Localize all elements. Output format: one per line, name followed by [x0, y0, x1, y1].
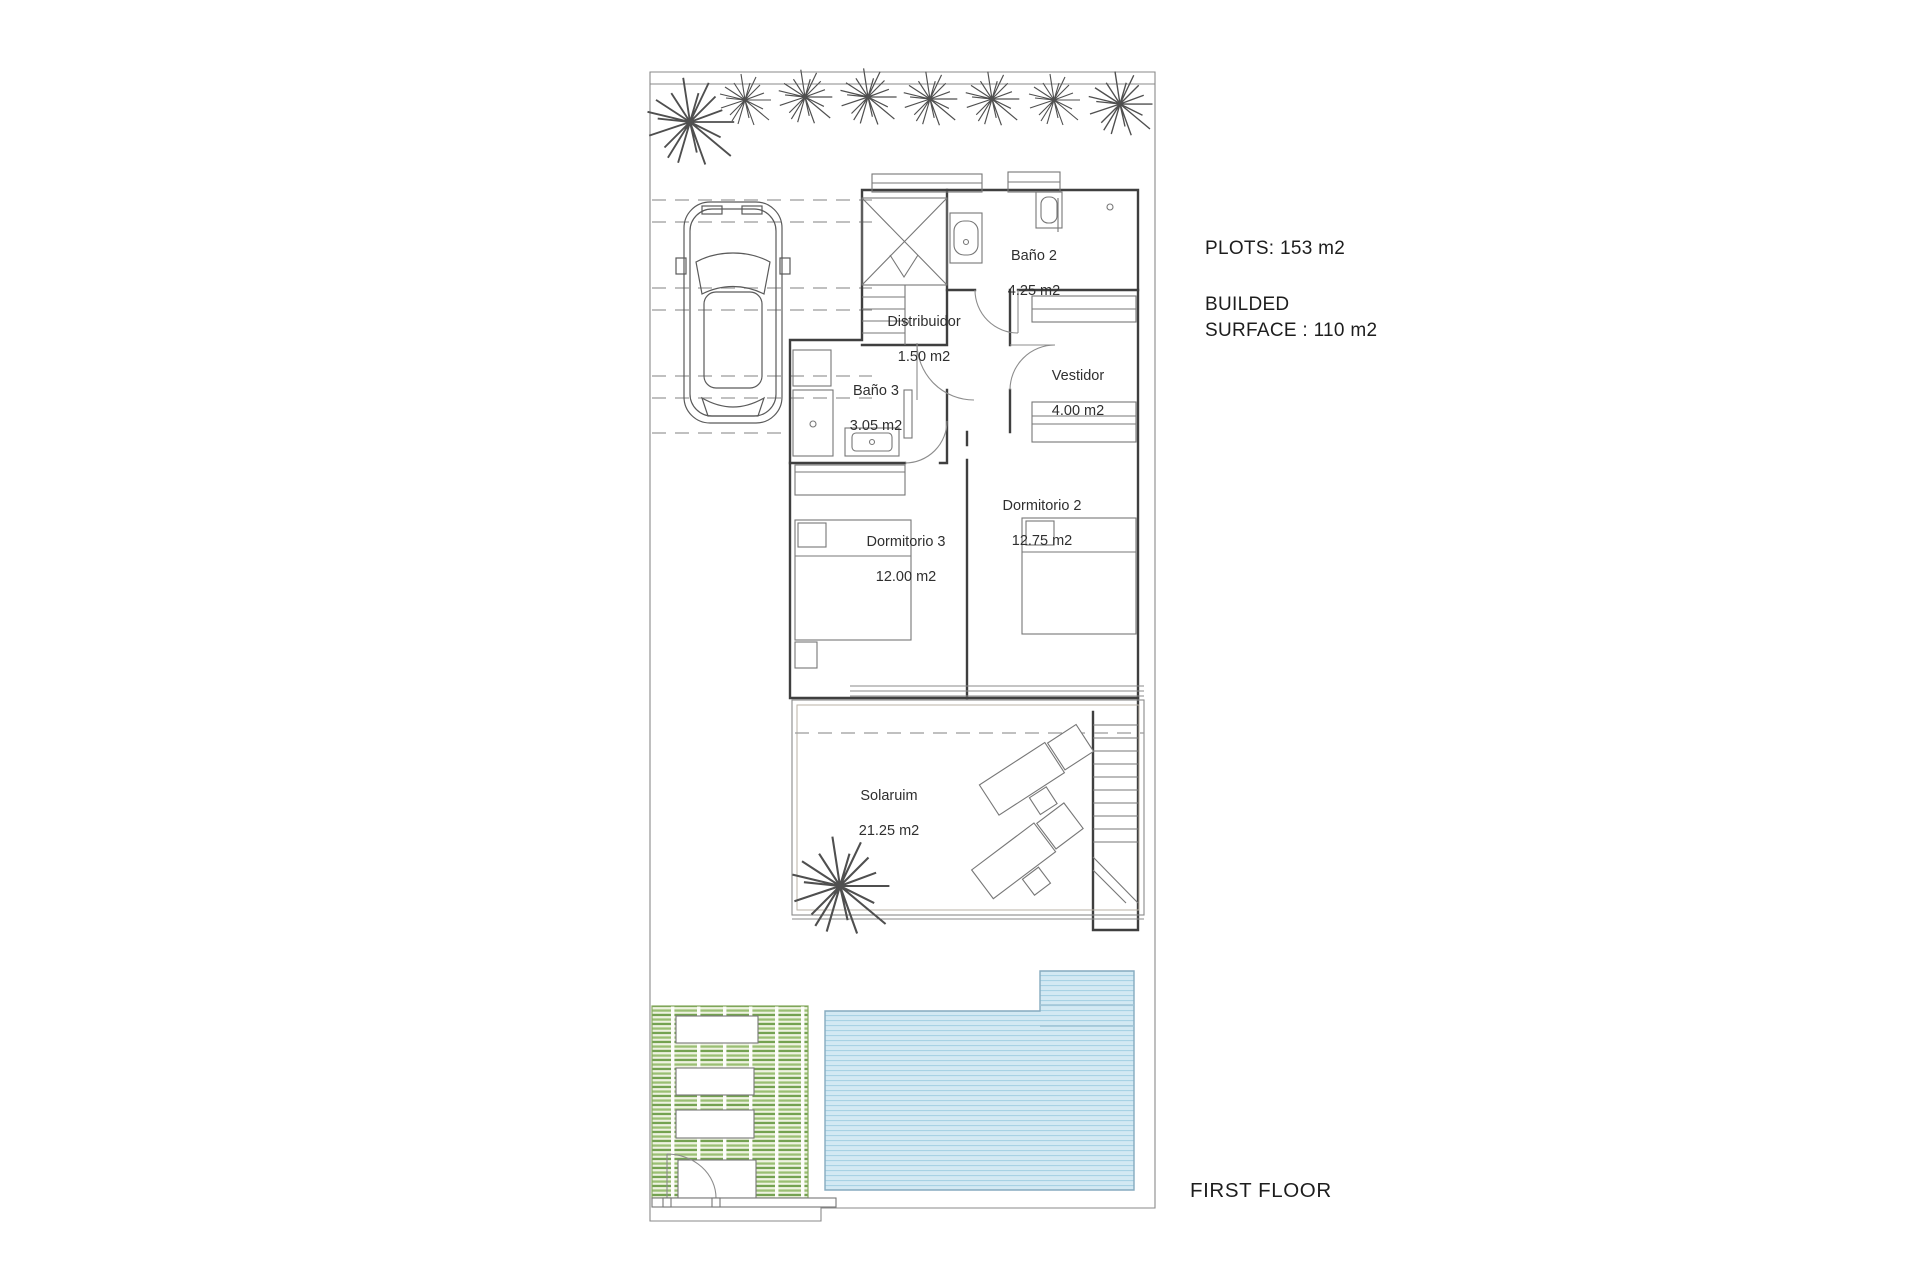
green-deck [652, 1006, 836, 1207]
room-area: 12.00 m2 [836, 569, 976, 587]
nightstand [795, 642, 817, 668]
room-area: 12.75 m2 [972, 533, 1112, 551]
tree-icon [779, 70, 833, 124]
room-area: 21.25 m2 [819, 823, 959, 841]
pool [825, 971, 1134, 1190]
floor-plan-canvas: Baño 2 4.25 m2 Distribuidor 1.50 m2 Baño… [0, 0, 1920, 1280]
room-name: Baño 3 [806, 383, 946, 401]
tree-icon [1089, 72, 1153, 136]
walkway [652, 1198, 836, 1207]
room-label-vestidor: Vestidor 4.00 m2 [1008, 350, 1148, 438]
builded-line2: SURFACE : 110 m2 [1205, 318, 1377, 344]
room-label-solarium: Solaruim 21.25 m2 [819, 770, 959, 858]
room-label-dormitorio3: Dormitorio 3 12.00 m2 [836, 516, 976, 604]
tree-icon [720, 74, 771, 125]
tree-icon [841, 68, 897, 124]
car-icon [676, 202, 790, 423]
room-name: Dormitorio 2 [972, 498, 1112, 516]
tree-icon [648, 78, 735, 165]
tree-icon [966, 72, 1020, 126]
room-label-bano3: Baño 3 3.05 m2 [806, 365, 946, 453]
room-name: Solaruim [819, 788, 959, 806]
plots-annotation: PLOTS: 153 m2 [1205, 236, 1345, 262]
sun-lounger-icon [972, 801, 1098, 916]
room-name: Dormitorio 3 [836, 534, 976, 552]
wardrobe [795, 465, 905, 495]
exterior-stairs [1093, 725, 1138, 903]
room-area: 3.05 m2 [806, 418, 946, 436]
builded-surface-annotation: BUILDED SURFACE : 110 m2 [1205, 292, 1377, 344]
tree-row [648, 68, 1153, 164]
tree-icon [904, 72, 958, 126]
floor-title: FIRST FLOOR [1190, 1179, 1332, 1203]
room-area: 4.00 m2 [1008, 403, 1148, 421]
tree-icon [1029, 74, 1080, 125]
room-name: Baño 2 [964, 248, 1104, 266]
room-name: Distribuidor [854, 314, 994, 332]
builded-line1: BUILDED [1205, 292, 1377, 318]
room-name: Vestidor [1008, 368, 1148, 386]
sun-lounger-icon [979, 723, 1106, 834]
floor-plan-drawing [0, 0, 1920, 1280]
room-label-dormitorio2: Dormitorio 2 12.75 m2 [972, 480, 1112, 568]
